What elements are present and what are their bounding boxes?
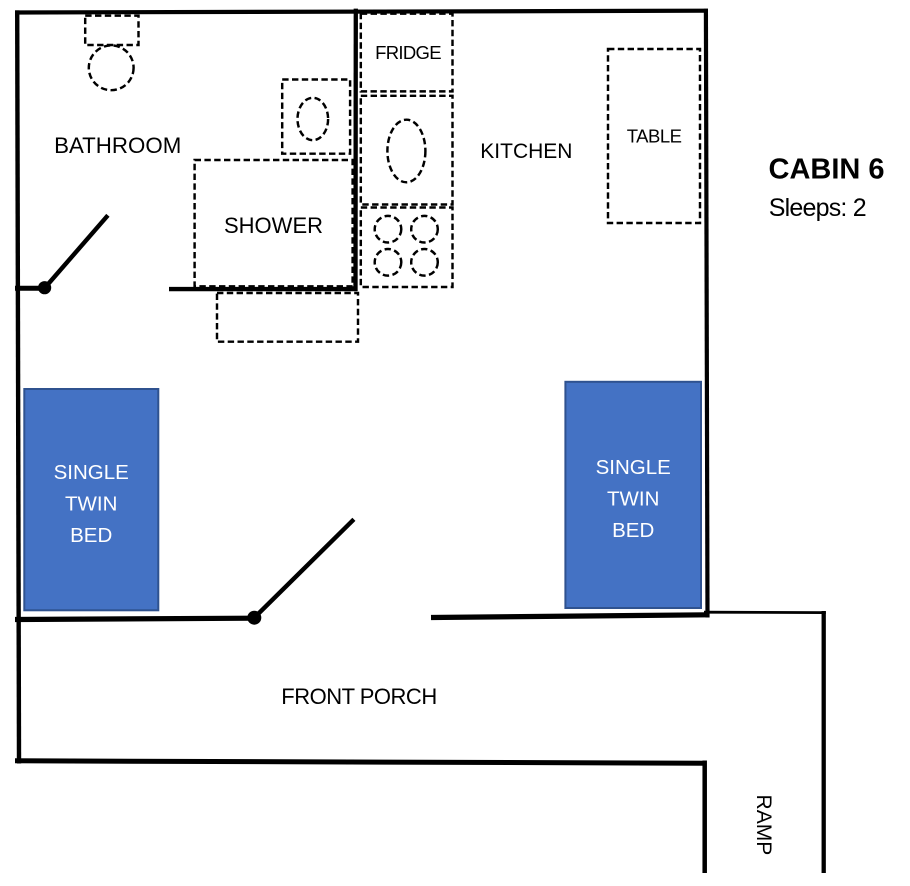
svg-text:FRONT PORCH: FRONT PORCH	[281, 684, 436, 709]
svg-text:BED: BED	[612, 519, 654, 542]
svg-text:TABLE: TABLE	[627, 126, 682, 147]
svg-text:SHOWER: SHOWER	[224, 213, 323, 238]
svg-text:SINGLE: SINGLE	[54, 461, 129, 484]
svg-text:KITCHEN: KITCHEN	[480, 140, 572, 163]
svg-text:FRIDGE: FRIDGE	[375, 42, 441, 63]
svg-text:SINGLE: SINGLE	[596, 456, 671, 479]
svg-text:RAMP: RAMP	[752, 795, 775, 856]
svg-text:BED: BED	[70, 524, 112, 547]
svg-text:BATHROOM: BATHROOM	[54, 133, 181, 158]
svg-text:TWIN: TWIN	[607, 488, 659, 511]
svg-text:Sleeps: 2: Sleeps: 2	[769, 194, 866, 222]
svg-text:TWIN: TWIN	[65, 493, 117, 516]
svg-text:CABIN 6: CABIN 6	[769, 154, 885, 186]
